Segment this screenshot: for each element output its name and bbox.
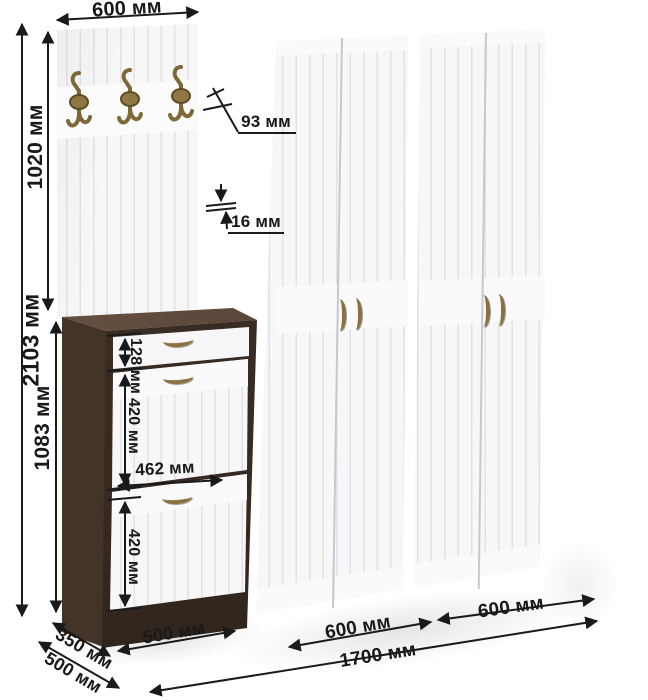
door-handle-icon	[492, 294, 505, 326]
coat-hook-icon	[117, 65, 143, 135]
dim-edge-thickness-label: 16 мм	[231, 212, 281, 232]
dim-drawer-height-label: 128 мм	[126, 338, 144, 394]
door-handle-icon	[349, 298, 362, 330]
furniture-dimension-diagram: 600 мм 2103 мм 1020 мм 1083 мм 93 мм 16 …	[0, 0, 648, 700]
dim-edge-depth-label: 93 мм	[241, 112, 291, 132]
door-handle-icon	[477, 295, 490, 327]
wall-shadow	[540, 540, 620, 630]
dim-inner-width-label: 462 мм	[135, 457, 195, 480]
dim-flap1-height-label: 420 мм	[124, 398, 142, 454]
dim-panel-width-label: 600 мм	[92, 0, 163, 23]
dim-total-height-label: 2103 мм	[18, 294, 45, 387]
dim-panel-height-label: 1020 мм	[24, 104, 48, 189]
dim-flap2-height-label: 420 мм	[124, 529, 142, 585]
dim-cabinet-height-label: 1083 мм	[31, 385, 55, 470]
coat-hook-icon	[168, 62, 194, 132]
door-handle-icon	[333, 299, 346, 331]
coat-hook-icon	[66, 68, 92, 138]
